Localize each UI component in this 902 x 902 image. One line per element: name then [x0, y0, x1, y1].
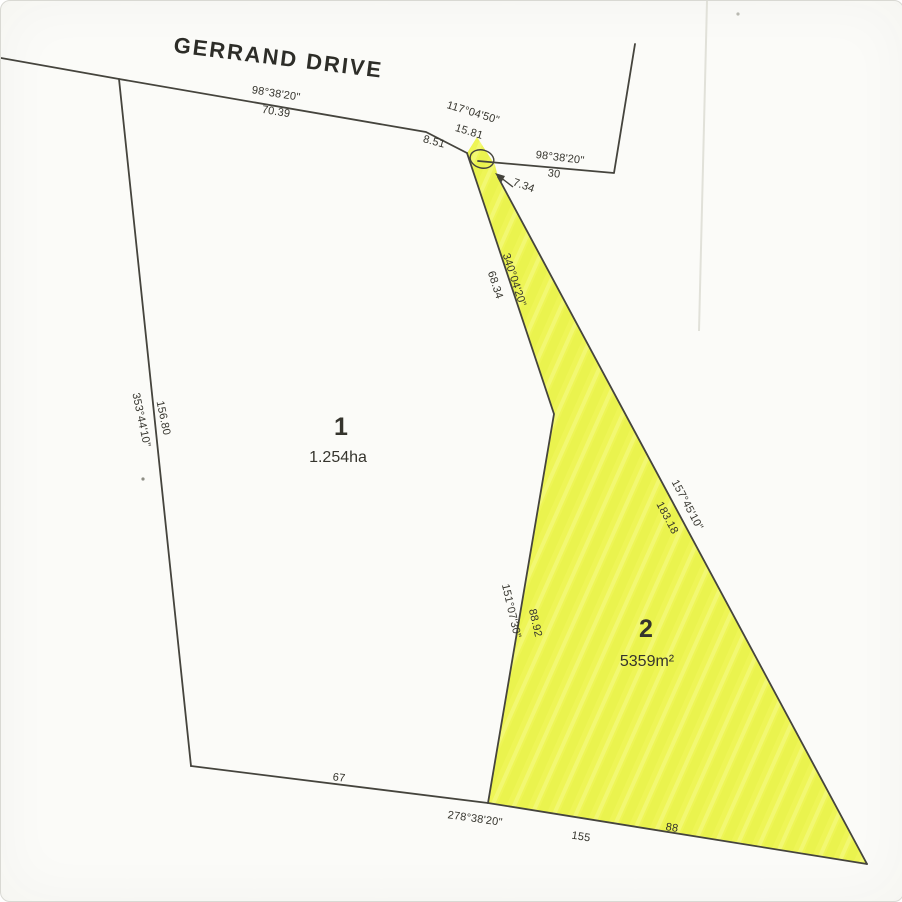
strip-west-distance-label: 68.34 [485, 270, 505, 301]
scan-speck [736, 12, 739, 15]
lot2-south-offset-label: 88 [665, 821, 679, 835]
lot1-south-distance-label: 67 [332, 771, 346, 784]
road-jog-distance-label: 8.51 [422, 133, 447, 150]
road-north-bearing-label: 98°38'20" [251, 84, 301, 104]
scan-speck [141, 477, 144, 480]
survey-plan: GERRAND DRIVE 98°38'20" 70.39 117°04'50"… [0, 0, 902, 902]
road-splay-distance-label: 15.81 [454, 122, 485, 142]
west-boundary-line [119, 79, 191, 766]
road-east-distance-label: 30 [547, 167, 561, 180]
lot2-south-distance-label: 155 [571, 830, 592, 845]
scan-fold-line [699, 1, 707, 331]
street-name-label: GERRAND DRIVE [172, 32, 384, 82]
lot1-area-label: 1.254ha [309, 449, 367, 466]
lot2-highlight-area [467, 137, 867, 864]
lot1-south-bearing-label: 278°38'20" [447, 809, 503, 829]
plan-canvas: GERRAND DRIVE 98°38'20" 70.39 117°04'50"… [1, 1, 902, 901]
strip-neck-distance-label: 7.34 [511, 177, 536, 196]
lot2-area-label: 5359m² [620, 653, 675, 670]
lot1-number-label: 1 [334, 413, 348, 441]
road-east-bearing-label: 98°38'20" [535, 149, 585, 167]
road-splay-bearing-label: 117°04'50" [445, 99, 501, 126]
west-bearing-label: 353°44'10" [129, 392, 152, 449]
road-north-boundary-line [1, 58, 467, 153]
lot2-number-label: 2 [639, 615, 653, 643]
road-north-distance-label: 70.39 [261, 104, 291, 120]
divider-bearing-label: 151°07'30" [499, 583, 523, 640]
